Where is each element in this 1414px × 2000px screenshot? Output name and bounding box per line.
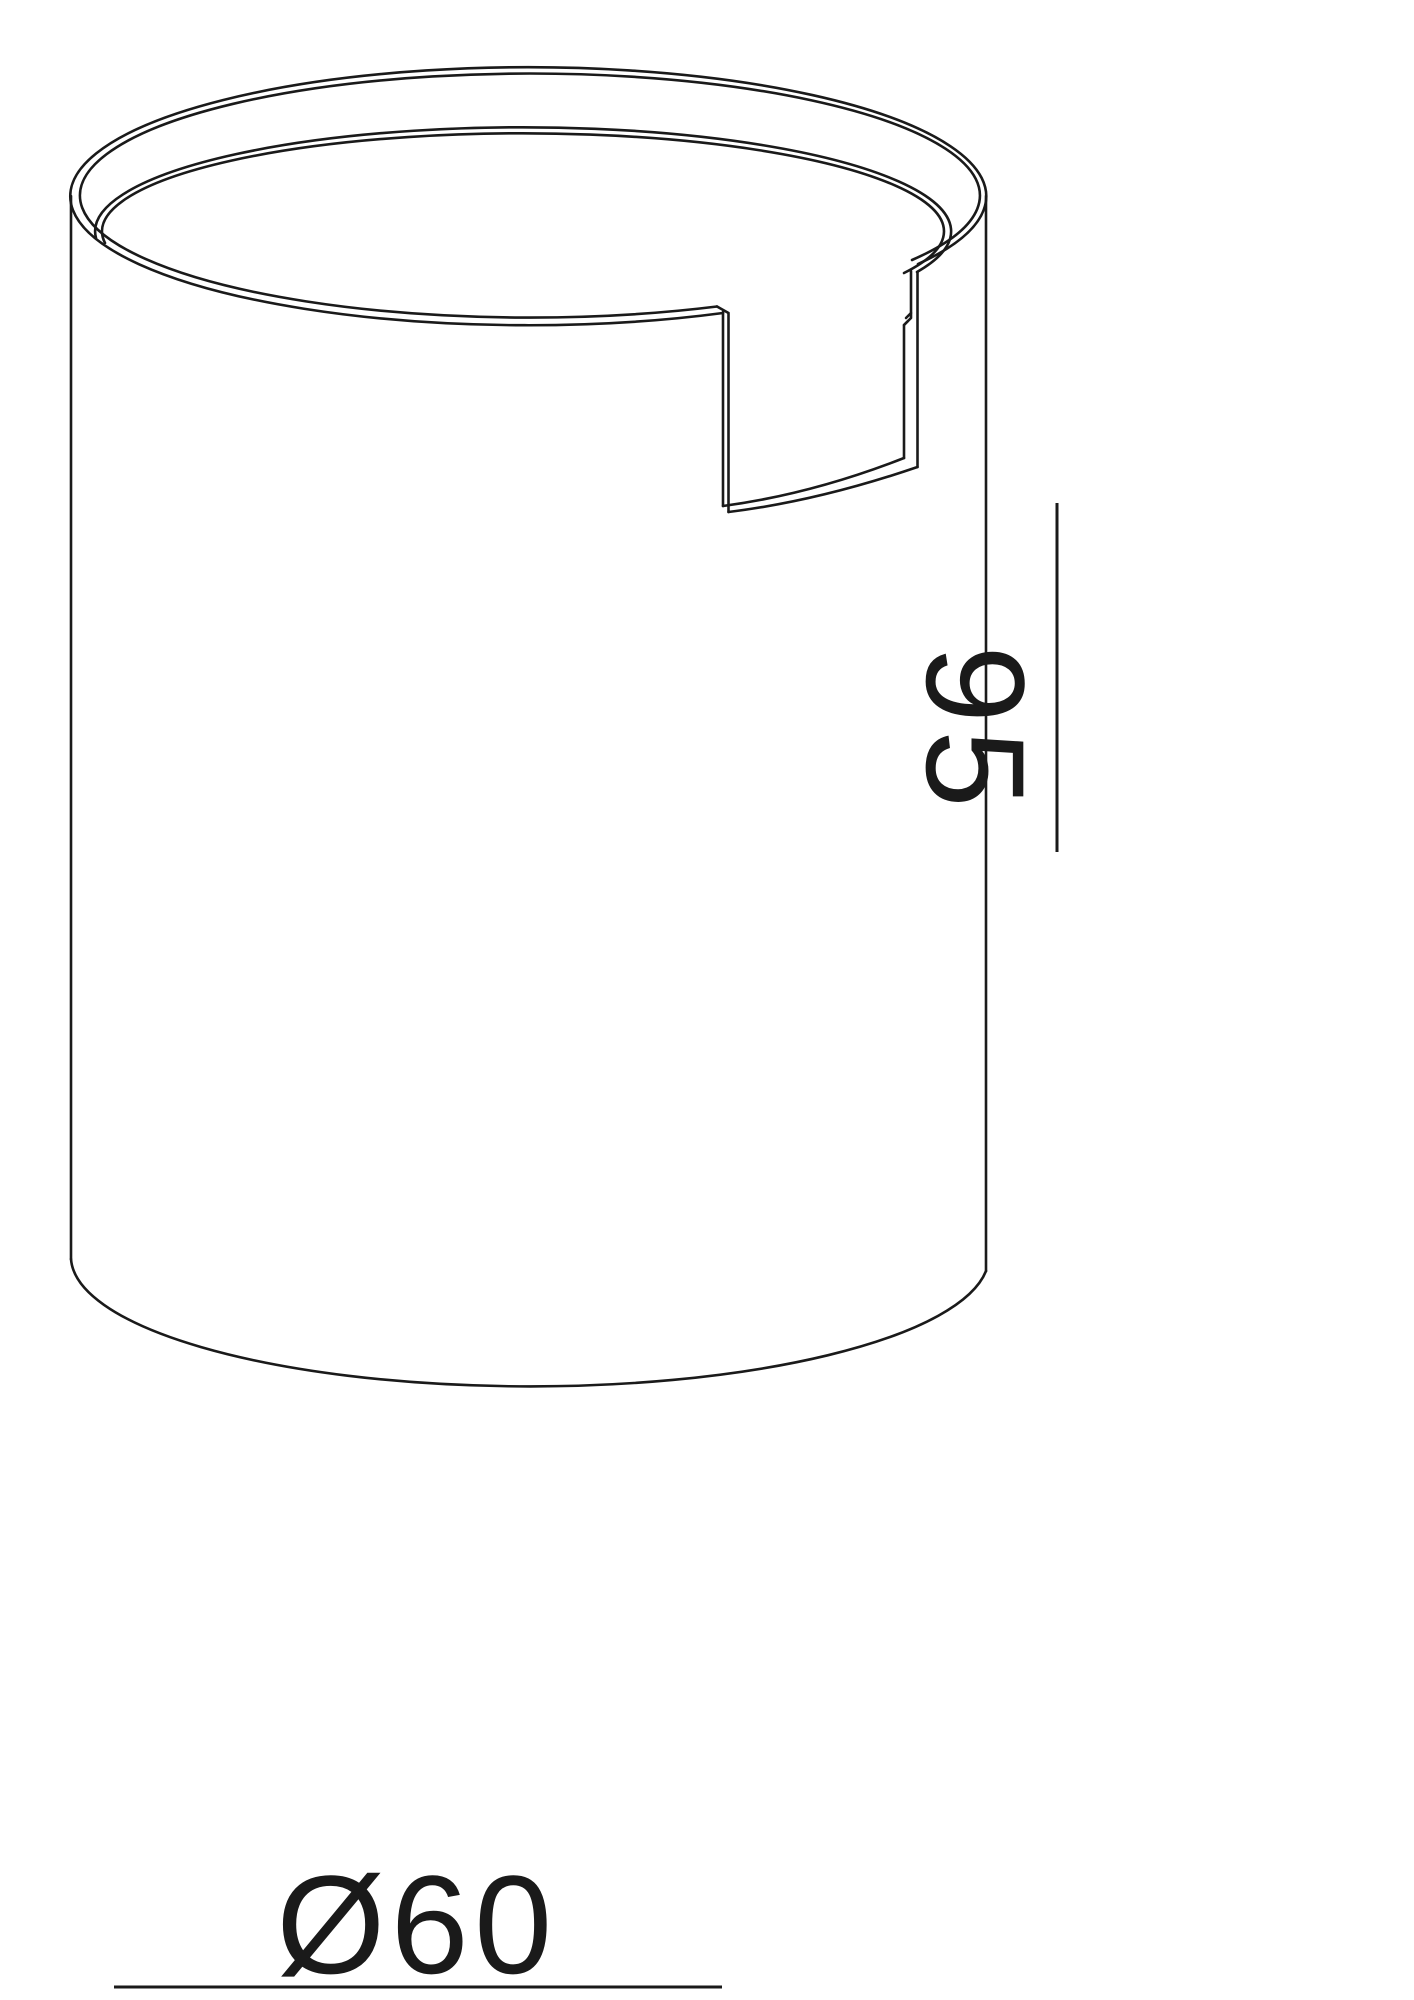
technical-drawing-page: 95 Ø60 — [0, 0, 1414, 2000]
cylinder-notch — [717, 271, 918, 512]
inner-rim-ellipse — [102, 133, 944, 273]
inner-rim-chamfer — [95, 127, 951, 272]
diameter-dimension-label: Ø60 — [276, 1855, 557, 1995]
bottom-edge-arc — [71, 1259, 986, 1386]
cylinder-top-rim — [70, 67, 986, 325]
height-dimension-label: 95 — [905, 645, 1045, 815]
outer-rim-ellipse — [70, 67, 986, 325]
notch-right-edge-inner — [904, 271, 911, 458]
outer-rim-chamfer — [80, 74, 980, 318]
cylinder-body — [71, 196, 986, 1386]
notch-bottom-edge-outer — [729, 467, 918, 512]
cylinder-line-drawing — [0, 0, 1414, 2000]
notch-bottom-edge-inner — [723, 458, 904, 506]
